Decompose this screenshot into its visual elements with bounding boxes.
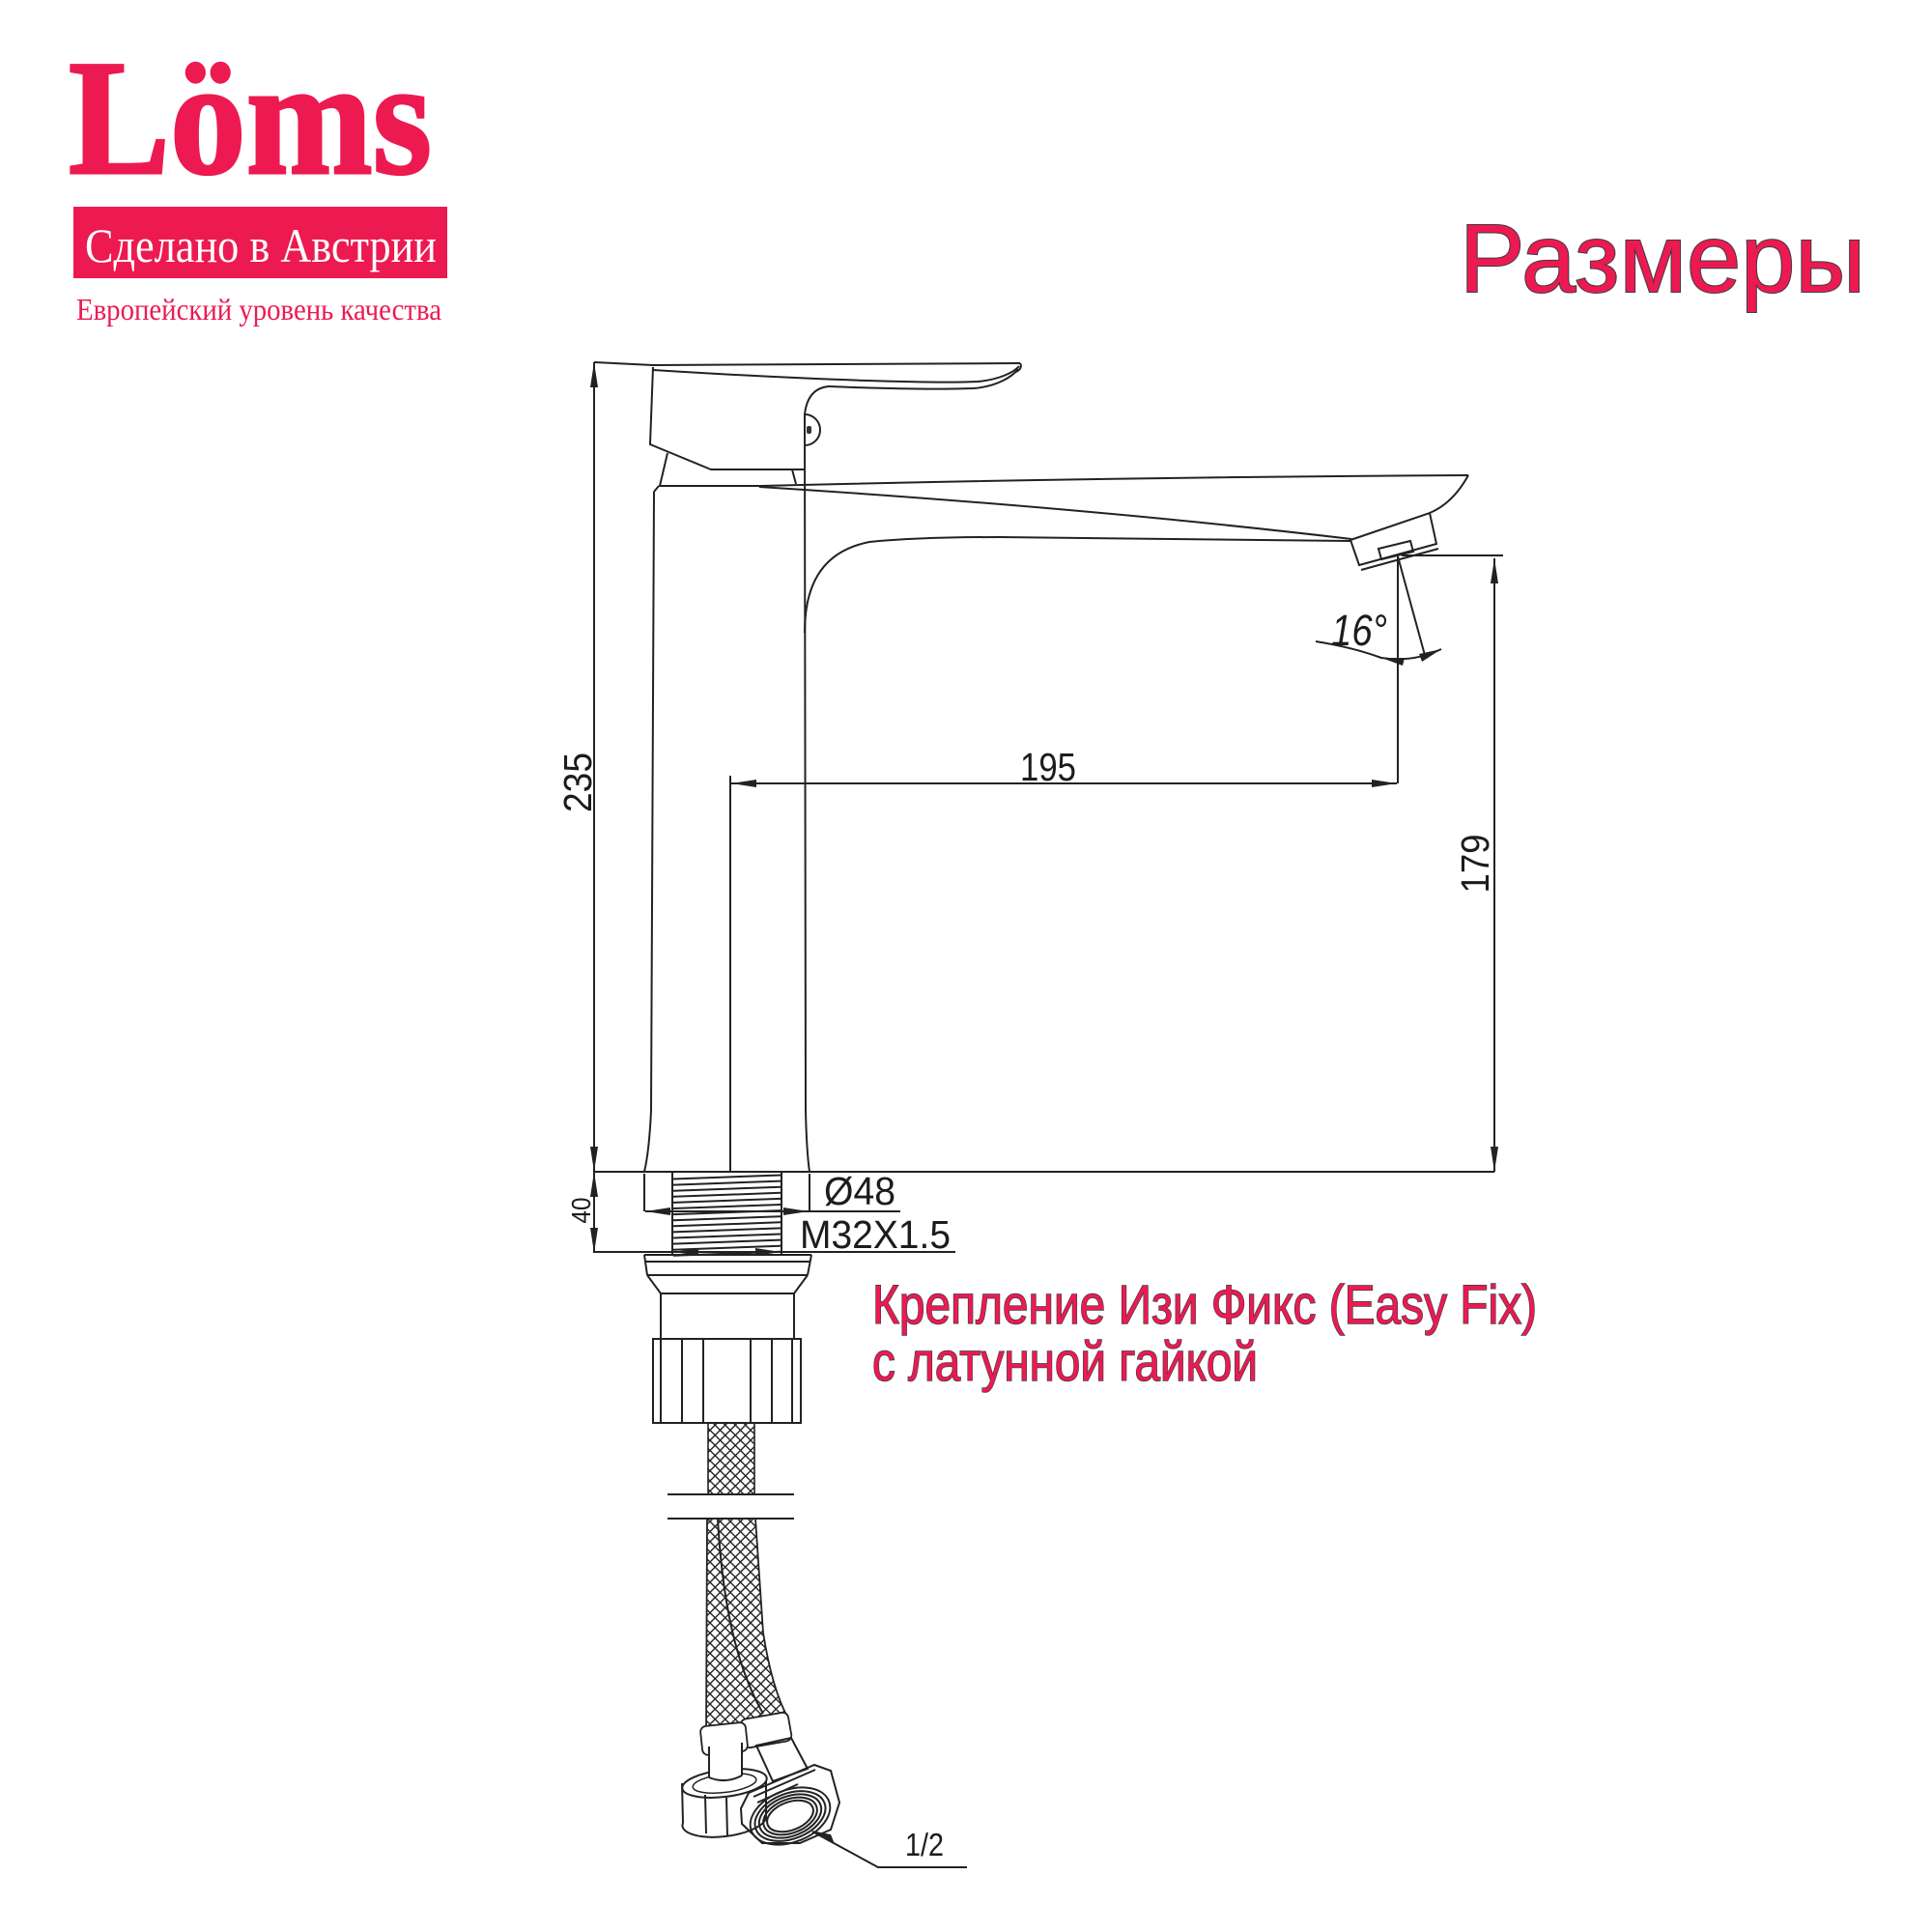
svg-text:179: 179: [1453, 835, 1497, 894]
svg-text:Сделано в Австрии: Сделано в Австрии: [85, 218, 437, 272]
svg-text:40: 40: [566, 1198, 596, 1224]
svg-text:16°: 16°: [1331, 606, 1387, 655]
svg-text:Размеры: Размеры: [1460, 205, 1865, 313]
svg-text:235: 235: [555, 753, 600, 812]
svg-text:1/2: 1/2: [905, 1827, 944, 1862]
svg-text:195: 195: [1020, 745, 1076, 789]
svg-text:с латунной гайкой: с латунной гайкой: [872, 1331, 1258, 1393]
svg-text:M32X1.5: M32X1.5: [800, 1212, 951, 1257]
svg-text:Ø48: Ø48: [824, 1169, 895, 1213]
svg-text:Европейский уровень качества: Европейский уровень качества: [76, 292, 441, 327]
svg-text:Löms: Löms: [69, 27, 432, 209]
svg-text:Крепление Изи Фикс (Easy Fix): Крепление Изи Фикс (Easy Fix): [872, 1274, 1537, 1336]
